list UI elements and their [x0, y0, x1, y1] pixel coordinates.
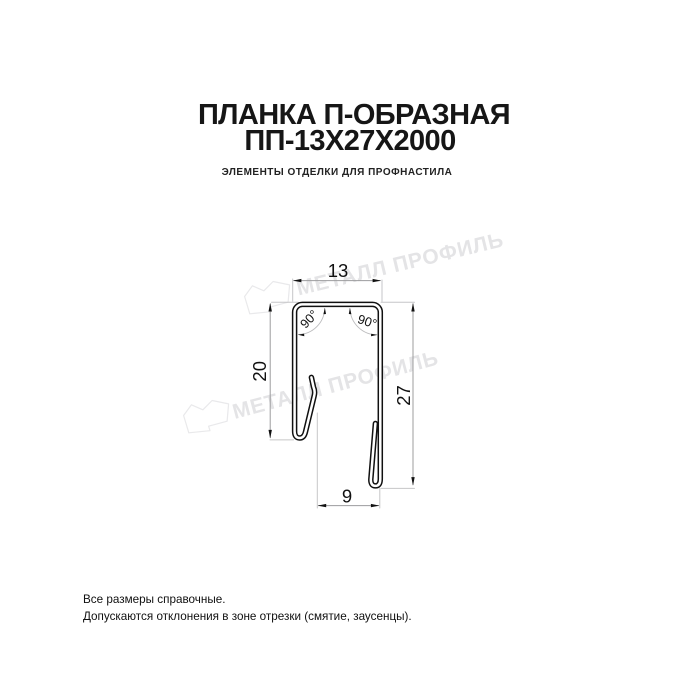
svg-text:МЕТАЛЛ ПРОФИЛЬ: МЕТАЛЛ ПРОФИЛЬ [294, 228, 506, 300]
svg-text:9: 9 [342, 486, 352, 507]
svg-text:20: 20 [249, 361, 270, 382]
svg-text:90°: 90° [297, 307, 321, 331]
svg-text:27: 27 [393, 385, 414, 406]
svg-text:13: 13 [328, 260, 349, 281]
